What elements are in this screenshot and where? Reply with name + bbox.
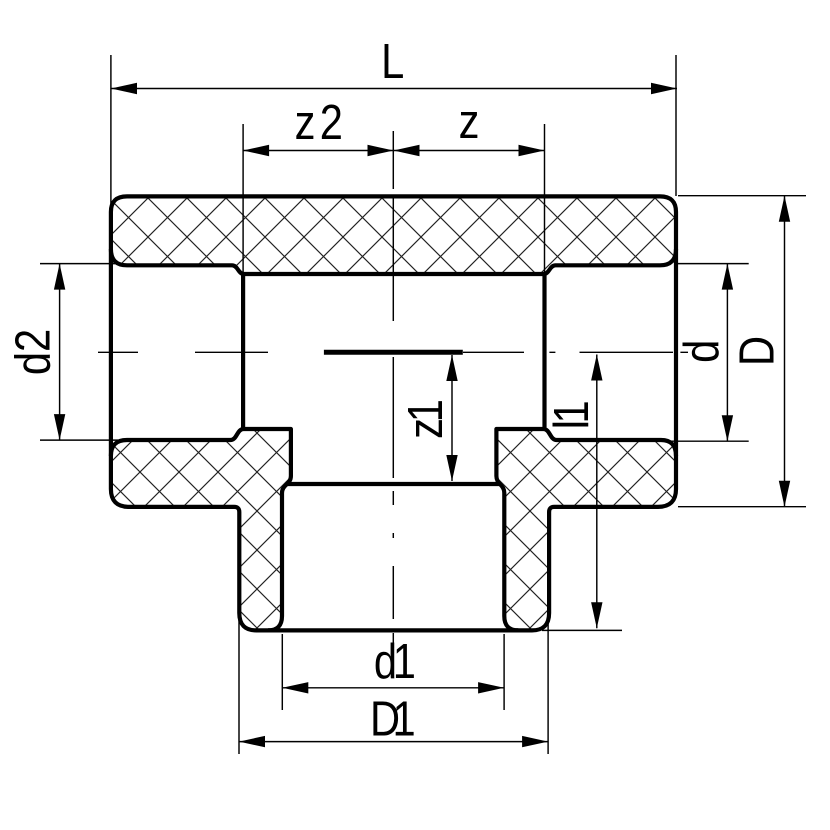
svg-text:z: z <box>459 94 480 149</box>
svg-text:D: D <box>729 336 784 366</box>
svg-text:z1: z1 <box>398 400 453 439</box>
svg-text:D1: D1 <box>370 691 414 746</box>
svg-text:d2: d2 <box>5 329 60 375</box>
svg-text:d: d <box>674 340 729 363</box>
svg-text:L: L <box>381 34 404 89</box>
svg-text:l1: l1 <box>544 401 599 429</box>
svg-text:z2: z2 <box>295 95 347 150</box>
svg-text:d1: d1 <box>374 634 415 689</box>
